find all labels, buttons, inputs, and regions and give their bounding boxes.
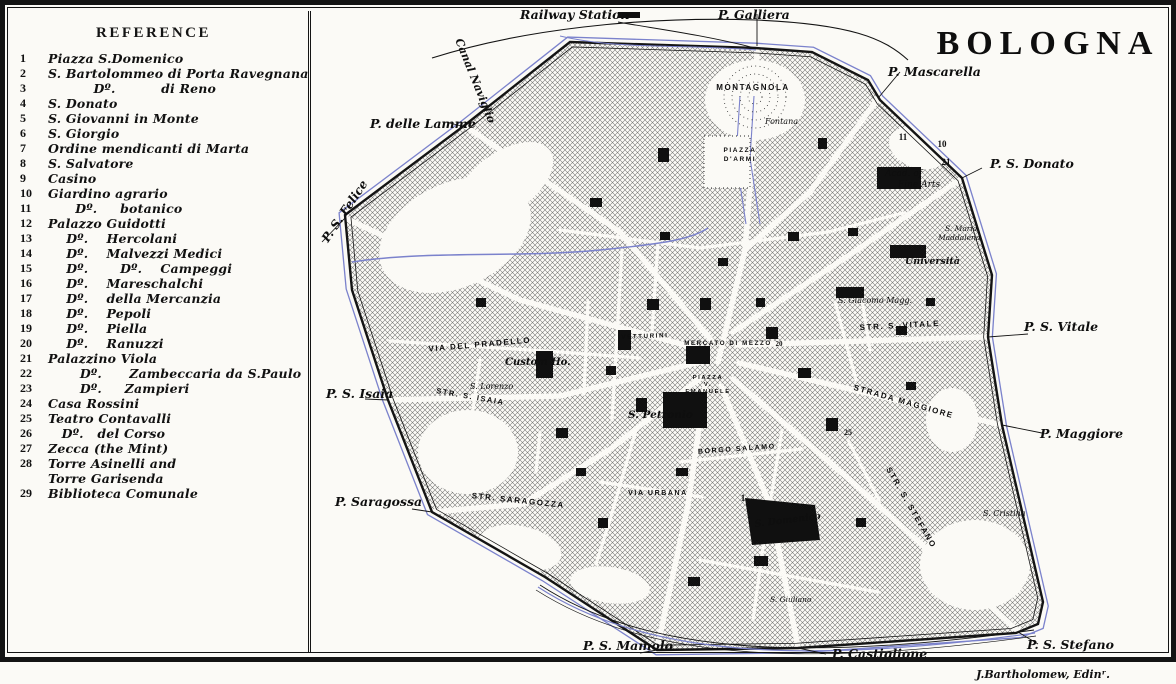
reference-item-number: 21	[17, 351, 48, 366]
reference-item-label: Zecca (the Mint)	[48, 441, 168, 456]
reference-item: 6S. Giorgio	[17, 126, 308, 141]
reference-item-label: Dº. di Reno	[48, 81, 216, 96]
reference-item-label: Palazzino Viola	[48, 351, 157, 366]
reference-item: 3 Dº. di Reno	[17, 81, 308, 96]
reference-item-label: Dº. botanico	[48, 201, 182, 216]
reference-item-label: Casa Rossini	[48, 396, 139, 411]
reference-item: 16 Dº. Mareschalchi	[17, 276, 308, 291]
reference-item-number: 6	[17, 126, 48, 141]
reference-item-number: 14	[17, 246, 48, 261]
reference-item-number: 16	[17, 276, 48, 291]
reference-item-number	[17, 471, 48, 486]
reference-item: 14 Dº. Malvezzi Medici	[17, 246, 308, 261]
reference-item-label: Dº. Pepoli	[48, 306, 151, 321]
reference-item-label: Giardino agrario	[48, 186, 168, 201]
reference-item-label: S. Salvatore	[48, 156, 134, 171]
reference-item-number: 2	[17, 66, 48, 81]
reference-item-label: Dº. Piella	[48, 321, 147, 336]
reference-item: 5S. Giovanni in Monte	[17, 111, 308, 126]
reference-item-number: 22	[17, 366, 48, 381]
reference-item-number: 8	[17, 156, 48, 171]
reference-item-number: 28	[17, 456, 48, 471]
reference-item-number: 27	[17, 441, 48, 456]
reference-item-label: Dº. del Corso	[48, 426, 165, 441]
reference-item-label: Biblioteca Comunale	[48, 486, 198, 501]
reference-item-label: Ordine mendicanti di Marta	[48, 141, 249, 156]
reference-item: 8S. Salvatore	[17, 156, 308, 171]
reference-item-label: Torre Asinelli and	[48, 456, 176, 471]
reference-item-number: 9	[17, 171, 48, 186]
reference-item: 10Giardino agrario	[17, 186, 308, 201]
reference-item-label: Dº. Ranuzzi	[48, 336, 164, 351]
reference-item-number: 13	[17, 231, 48, 246]
reference-item-number: 23	[17, 381, 48, 396]
reference-item-number: 15	[17, 261, 48, 276]
reference-item-number: 3	[17, 81, 48, 96]
reference-list: 1Piazza S.Domenico2S. Bartolommeo di Por…	[17, 51, 308, 501]
reference-item: 1Piazza S.Domenico	[17, 51, 308, 66]
reference-item-number: 5	[17, 111, 48, 126]
reference-item: 23 Dº. Zampieri	[17, 381, 308, 396]
reference-item-number: 11	[17, 201, 48, 216]
reference-item-number: 4	[17, 96, 48, 111]
reference-item: 11 Dº. botanico	[17, 201, 308, 216]
reference-item-number: 12	[17, 216, 48, 231]
reference-item-number: 1	[17, 51, 48, 66]
reference-item: 12Palazzo Guidotti	[17, 216, 308, 231]
reference-panel: REFERENCE 1Piazza S.Domenico2S. Bartolom…	[11, 11, 311, 653]
reference-item-label: Casino	[48, 171, 96, 186]
reference-item-label: Dº. Zambeccaria da S.Paulo	[48, 366, 301, 381]
reference-item-number: 29	[17, 486, 48, 501]
reference-item: 2S. Bartolommeo di Porta Ravegnana	[17, 66, 308, 81]
reference-item: 7Ordine mendicanti di Marta	[17, 141, 308, 156]
reference-item: 17 Dº. della Mercanzia	[17, 291, 308, 306]
reference-item: 22 Dº. Zambeccaria da S.Paulo	[17, 366, 308, 381]
reference-item: 24Casa Rossini	[17, 396, 308, 411]
reference-item: 28Torre Asinelli and	[17, 456, 308, 471]
reference-item-label: Teatro Contavalli	[48, 411, 171, 426]
reference-item-label: Piazza S.Domenico	[48, 51, 183, 66]
reference-item-label: S. Bartolommeo di Porta Ravegnana	[48, 66, 309, 81]
reference-item-number: 17	[17, 291, 48, 306]
reference-item: 25Teatro Contavalli	[17, 411, 308, 426]
reference-item-number: 18	[17, 306, 48, 321]
reference-item-label: Dº. Mareschalchi	[48, 276, 203, 291]
reference-item-label: Dº. Hercolani	[48, 231, 177, 246]
reference-item-number: 20	[17, 336, 48, 351]
bologna-map-page: BOLOGNARailway StationP. GallieraP. Masc…	[0, 0, 1176, 684]
reference-item-label: S. Giorgio	[48, 126, 119, 141]
reference-item: 9Casino	[17, 171, 308, 186]
reference-item: 13 Dº. Hercolani	[17, 231, 308, 246]
reference-item-number: 10	[17, 186, 48, 201]
reference-item-label: Dº. Dº. Campeggi	[48, 261, 232, 276]
reference-item-label: S. Donato	[48, 96, 118, 111]
reference-item-label: Torre Garisenda	[48, 471, 164, 486]
reference-item-label: S. Giovanni in Monte	[48, 111, 199, 126]
reference-item: Torre Garisenda	[17, 471, 308, 486]
reference-item-label: Dº. Zampieri	[48, 381, 190, 396]
reference-item-number: 24	[17, 396, 48, 411]
reference-item-number: 19	[17, 321, 48, 336]
reference-item: 18 Dº. Pepoli	[17, 306, 308, 321]
reference-item: 29Biblioteca Comunale	[17, 486, 308, 501]
reference-item-label: Palazzo Guidotti	[48, 216, 166, 231]
reference-item: 20 Dº. Ranuzzi	[17, 336, 308, 351]
reference-item: 26 Dº. del Corso	[17, 426, 308, 441]
reference-item: 19 Dº. Piella	[17, 321, 308, 336]
reference-item: 4S. Donato	[17, 96, 308, 111]
cartographer-credit: J.Bartholomew, Edinʳ.	[920, 668, 1110, 681]
reference-title: REFERENCE	[17, 25, 290, 42]
reference-item-label: Dº. Malvezzi Medici	[48, 246, 222, 261]
reference-item: 15 Dº. Dº. Campeggi	[17, 261, 308, 276]
reference-item: 21Palazzino Viola	[17, 351, 308, 366]
reference-item-number: 26	[17, 426, 48, 441]
reference-item-label: Dº. della Mercanzia	[48, 291, 221, 306]
reference-item: 27Zecca (the Mint)	[17, 441, 308, 456]
reference-item-number: 25	[17, 411, 48, 426]
reference-item-number: 7	[17, 141, 48, 156]
